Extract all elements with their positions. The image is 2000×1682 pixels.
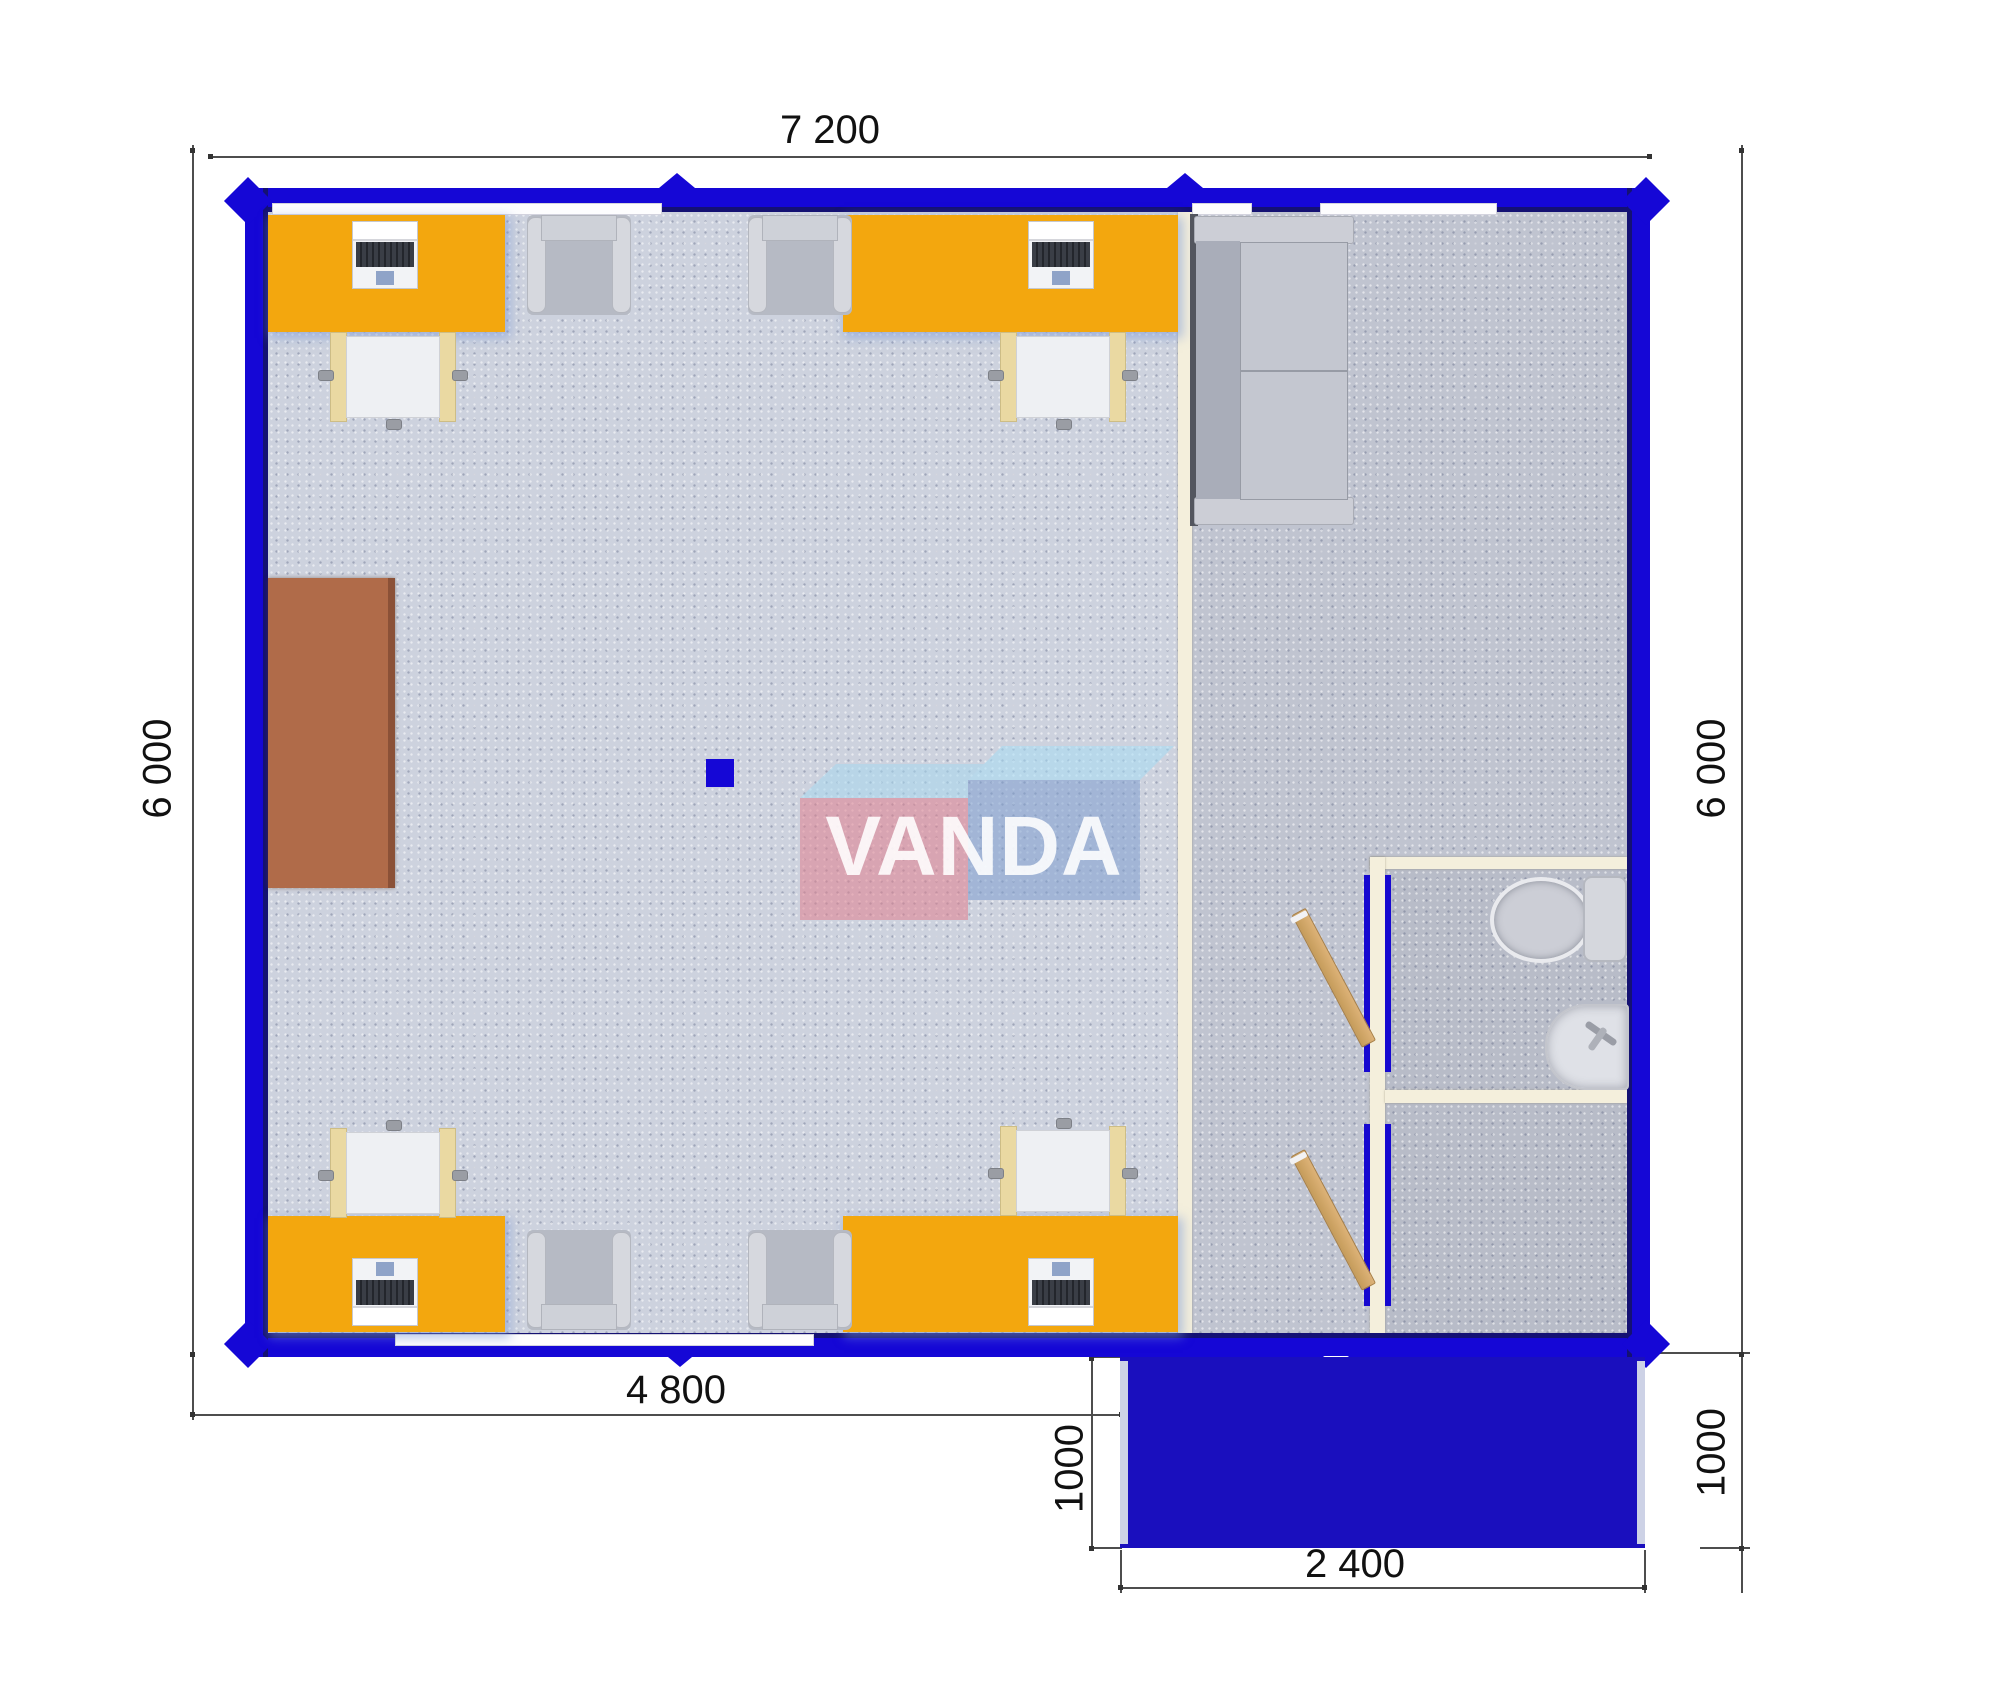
dim-label-bottom-width: 4 800 <box>596 1368 756 1413</box>
laptop-keyboard <box>356 242 414 267</box>
laptop-bottom-left <box>352 1258 418 1326</box>
laptop-touchpad <box>1052 1262 1070 1276</box>
vanda-logo-text: VANDA <box>798 796 1150 896</box>
desk-top-right <box>843 215 1178 332</box>
sofa-seat-cushion-2 <box>1240 371 1348 500</box>
dim-line-top <box>210 156 1650 158</box>
laptop-screen <box>353 222 417 241</box>
entrance-canopy <box>1120 1357 1645 1548</box>
module-joint-tab-top-2 <box>1167 173 1203 188</box>
dim-label-height-left: 6 000 <box>136 689 181 849</box>
exterior-wall-left <box>245 188 268 1357</box>
laptop-touchpad <box>376 1262 394 1276</box>
floor-plan-canvas: 7 200 6 000 6 000 4 800 1000 1000 2 400 <box>0 0 2000 1682</box>
dim-ext-porch-bot <box>1091 1547 1122 1549</box>
bathroom-top-wall <box>1370 857 1627 869</box>
armchair-bottom-2 <box>748 1230 852 1330</box>
canopy-post-right <box>1637 1361 1645 1544</box>
module-joint-tab-bottom <box>662 1352 698 1367</box>
sofa-seat-cushion-1 <box>1240 242 1348 371</box>
storage-cabinet <box>268 578 395 888</box>
toilet-tank <box>1583 876 1627 962</box>
laptop-top-right <box>1028 221 1094 289</box>
office-chair-bottom-right <box>1000 1126 1126 1216</box>
module-joint-tab-top-1 <box>659 173 695 188</box>
laptop-keyboard <box>356 1280 414 1305</box>
utility-door-jamb-inner <box>1385 1124 1391 1306</box>
laptop-top-left <box>352 221 418 289</box>
dim-label-porch-depth-left: 1000 <box>1048 1389 1093 1549</box>
bathroom-left-wall <box>1370 857 1385 1333</box>
utility-room-floor <box>1385 1103 1627 1333</box>
desk-bottom-right <box>843 1216 1178 1332</box>
laptop-touchpad <box>1052 271 1070 285</box>
window-top-main <box>272 203 662 215</box>
dim-line-right <box>1741 145 1743 1593</box>
office-chair-top-left <box>330 332 456 422</box>
armchair-bottom-1 <box>527 1230 631 1330</box>
armchair-top-2 <box>748 215 852 315</box>
laptop-screen <box>353 1306 417 1325</box>
toilet-bowl <box>1490 877 1592 963</box>
sofa <box>1190 214 1358 526</box>
dim-line-porch-bottom <box>1120 1587 1645 1589</box>
exterior-wall-right <box>1627 188 1650 1357</box>
dim-label-total-width: 7 200 <box>750 108 910 153</box>
office-chair-bottom-left <box>330 1128 456 1218</box>
laptop-screen <box>1029 1306 1093 1325</box>
window-bottom-main <box>395 1334 814 1346</box>
laptop-keyboard <box>1032 242 1090 267</box>
office-chair-top-right <box>1000 332 1126 422</box>
dim-label-porch-width: 2 400 <box>1275 1542 1435 1587</box>
laptop-screen <box>1029 222 1093 241</box>
sofa-back-cushion <box>1196 241 1240 499</box>
armchair-top-1 <box>527 215 631 315</box>
dim-ext-right-top <box>1650 1352 1750 1354</box>
dim-label-height-right: 6 000 <box>1690 689 1735 849</box>
laptop-touchpad <box>376 271 394 285</box>
dim-line-left <box>192 145 194 1420</box>
dim-label-porch-depth-right: 1000 <box>1690 1373 1735 1533</box>
toilet-door-jamb-inner <box>1385 875 1391 1072</box>
sofa-armrest-top <box>1194 216 1354 244</box>
canopy-post-left <box>1120 1361 1128 1544</box>
dim-line-bottom-4800 <box>192 1414 1122 1416</box>
sofa-armrest-bottom <box>1194 497 1354 525</box>
bathroom-divider-wall <box>1385 1090 1627 1103</box>
laptop-bottom-right <box>1028 1258 1094 1326</box>
laptop-keyboard <box>1032 1280 1090 1305</box>
floor-service-box <box>706 759 734 787</box>
